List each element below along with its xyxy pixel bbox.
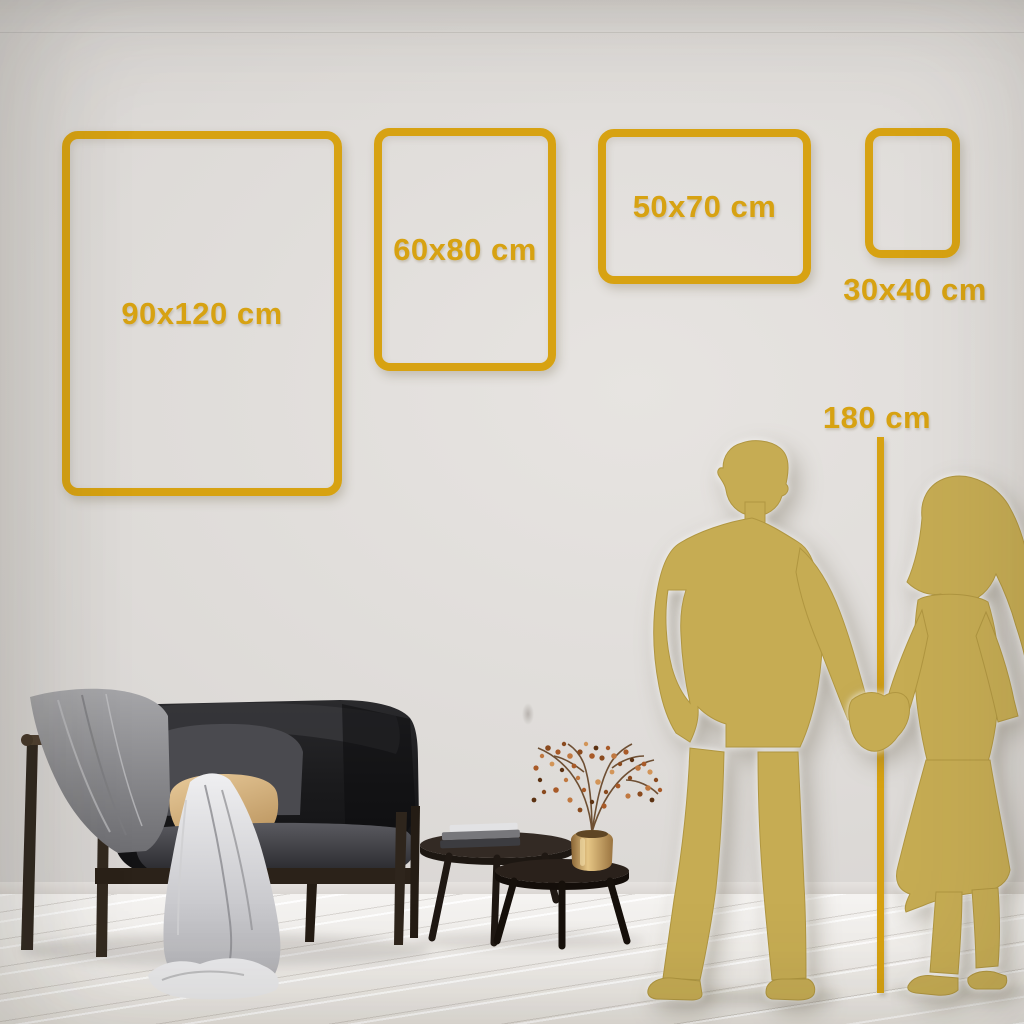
clasped-hands <box>849 693 910 752</box>
woman-silhouette <box>849 476 1024 995</box>
books <box>440 823 521 849</box>
throw-blanket <box>30 689 170 853</box>
brass-vase <box>571 830 613 871</box>
size-guide-scene: 90x120 cm 60x80 cm 50x70 cm 30x40 cm 180… <box>0 0 1024 1024</box>
room-scene <box>0 0 1024 1024</box>
man-silhouette <box>648 441 872 1000</box>
